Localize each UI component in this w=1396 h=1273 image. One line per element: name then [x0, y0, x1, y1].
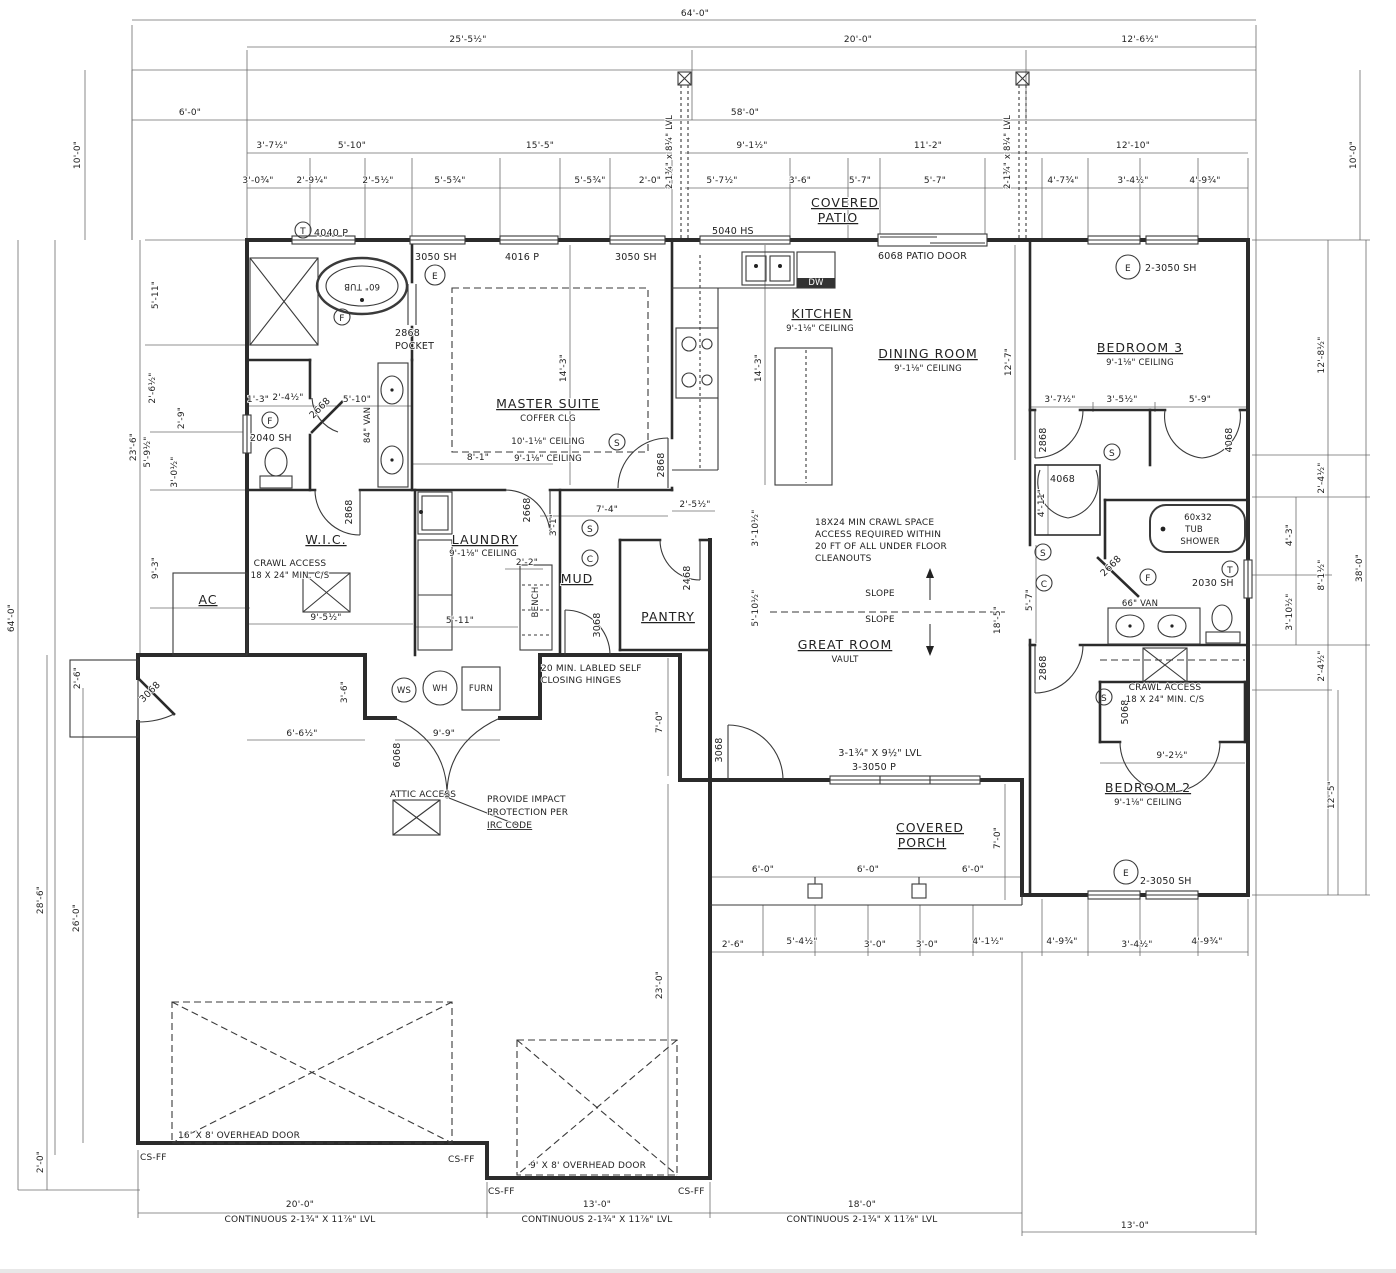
room-pantry: PANTRY: [641, 609, 695, 624]
svg-text:CLOSING HINGES: CLOSING HINGES: [541, 676, 621, 686]
svg-text:4068: 4068: [1050, 474, 1075, 485]
fan-icon: F: [1140, 569, 1156, 585]
svg-text:6'-0": 6'-0": [752, 865, 774, 875]
svg-text:8'-1": 8'-1": [467, 453, 489, 463]
svg-text:2868: 2868: [395, 328, 420, 339]
svg-text:2-3050 SH: 2-3050 SH: [1145, 263, 1197, 274]
svg-text:5'-11": 5'-11": [151, 281, 161, 309]
svg-text:14'-3": 14'-3": [754, 354, 764, 382]
room-ac: AC: [198, 592, 217, 607]
kitchen-sink: [742, 252, 794, 285]
co-detector-icon: C: [1036, 575, 1052, 591]
svg-text:5'-4½": 5'-4½": [786, 937, 817, 947]
smoke-detector-icon: S: [582, 520, 598, 536]
svg-text:3'-10½": 3'-10½": [751, 509, 761, 546]
svg-text:64'-0": 64'-0": [7, 604, 17, 632]
svg-text:ATTIC ACCESS: ATTIC ACCESS: [390, 790, 456, 800]
svg-text:20 MIN. LABLED SELF: 20 MIN. LABLED SELF: [541, 664, 642, 674]
entry-bumpout: [70, 660, 174, 737]
svg-text:WS: WS: [397, 686, 411, 696]
svg-text:9'-1⅛" CEILING: 9'-1⅛" CEILING: [1106, 358, 1174, 368]
floor-plan-drawing: E E E T T F F F S S S S S C C 64'-0" 25'…: [0, 0, 1396, 1269]
toilet-bath2: [1206, 605, 1240, 643]
svg-text:26'-0": 26'-0": [72, 904, 82, 932]
svg-text:4'-9¾": 4'-9¾": [1046, 937, 1077, 947]
svg-text:2'-6": 2'-6": [722, 940, 744, 950]
svg-text:5'-7½": 5'-7½": [706, 176, 737, 186]
room-mud: MUD: [561, 571, 594, 586]
svg-text:4'-11": 4'-11": [1037, 489, 1047, 517]
svg-text:IRC CODE: IRC CODE: [487, 821, 532, 831]
svg-text:PROTECTION PER: PROTECTION PER: [487, 808, 568, 818]
svg-text:9'-1⅛" CEILING: 9'-1⅛" CEILING: [1114, 798, 1182, 808]
svg-text:4040 P: 4040 P: [314, 228, 348, 239]
toilet-master: [260, 448, 292, 488]
svg-text:6068 PATIO DOOR: 6068 PATIO DOOR: [878, 251, 967, 262]
svg-text:84" VAN: 84" VAN: [363, 407, 373, 443]
svg-text:PORCH: PORCH: [898, 835, 947, 850]
svg-text:28'-6": 28'-6": [36, 886, 46, 914]
svg-text:E: E: [432, 272, 438, 282]
svg-text:2'-9": 2'-9": [177, 407, 187, 429]
window-4016: [500, 236, 558, 244]
svg-text:2668: 2668: [308, 396, 333, 421]
window-great: [830, 776, 980, 784]
svg-text:3'-4½": 3'-4½": [1121, 940, 1152, 950]
svg-text:7'-0": 7'-0": [655, 711, 665, 733]
svg-text:E: E: [1123, 869, 1129, 879]
svg-text:9'-1⅛" CEILING: 9'-1⅛" CEILING: [786, 324, 854, 334]
svg-text:5'-7": 5'-7": [1025, 589, 1035, 611]
svg-text:2'-5½": 2'-5½": [679, 500, 710, 510]
svg-text:2-1¾" x 8¼" LVL: 2-1¾" x 8¼" LVL: [1003, 115, 1013, 189]
svg-text:2040 SH: 2040 SH: [250, 433, 292, 444]
svg-text:C: C: [1041, 580, 1047, 590]
svg-text:CS-FF: CS-FF: [488, 1187, 515, 1197]
kitchen-island: [775, 348, 832, 485]
svg-text:3'-0": 3'-0": [916, 940, 938, 950]
svg-text:4016 P: 4016 P: [505, 252, 539, 263]
smoke-detector-icon: S: [1035, 544, 1051, 560]
range: [676, 328, 718, 398]
svg-text:2'-6½": 2'-6½": [148, 372, 158, 403]
svg-text:10'-0": 10'-0": [73, 141, 83, 169]
svg-text:12'-7": 12'-7": [1004, 348, 1014, 376]
svg-text:6'-0": 6'-0": [179, 108, 201, 118]
svg-text:S: S: [587, 525, 593, 535]
svg-text:PROVIDE IMPACT: PROVIDE IMPACT: [487, 795, 566, 805]
svg-text:6068: 6068: [392, 743, 403, 768]
svg-text:5'-7": 5'-7": [849, 176, 871, 186]
porch-post: [808, 884, 822, 898]
svg-text:60" TUB: 60" TUB: [344, 281, 380, 291]
svg-text:SLOPE: SLOPE: [865, 589, 895, 599]
svg-text:3068: 3068: [592, 613, 603, 638]
fan-icon: F: [262, 412, 278, 428]
tempered-icon: T: [1222, 561, 1238, 577]
svg-text:CLEANOUTS: CLEANOUTS: [815, 554, 872, 564]
svg-text:2-1¾" x 8¼" LVL: 2-1¾" x 8¼" LVL: [665, 115, 675, 189]
svg-text:12'-6½": 12'-6½": [1121, 35, 1158, 45]
room-bed2: BEDROOM 2: [1105, 780, 1191, 795]
svg-text:4'-9¾": 4'-9¾": [1191, 937, 1222, 947]
svg-text:3-1¾" X 9½" LVL: 3-1¾" X 9½" LVL: [838, 748, 922, 759]
svg-text:5'-11": 5'-11": [446, 616, 474, 626]
svg-text:CS-FF: CS-FF: [140, 1153, 167, 1163]
svg-text:58'-0": 58'-0": [731, 108, 759, 118]
svg-text:9'-1⅛" CEILING: 9'-1⅛" CEILING: [449, 549, 517, 559]
svg-text:2868: 2868: [1038, 428, 1049, 453]
svg-text:FURN: FURN: [469, 684, 493, 694]
svg-text:F: F: [339, 314, 344, 324]
ac-pad: [173, 573, 247, 655]
svg-text:2668: 2668: [1099, 554, 1124, 579]
svg-text:6'-0": 6'-0": [962, 865, 984, 875]
svg-text:2868: 2868: [656, 453, 667, 478]
svg-text:TUB: TUB: [1184, 525, 1203, 535]
room-kitchen: KITCHEN: [791, 306, 852, 321]
svg-text:CS-FF: CS-FF: [678, 1187, 705, 1197]
svg-text:S: S: [1101, 694, 1107, 704]
svg-text:4'-7¾": 4'-7¾": [1047, 176, 1078, 186]
right-dimension-text: 10'-0" 12'-8½" 2'-4½" 4'-3" 8'-1½" 3'-10…: [1285, 141, 1365, 809]
svg-text:3068: 3068: [714, 738, 725, 763]
window-3050-a: [410, 236, 465, 244]
svg-text:20 FT OF ALL UNDER FLOOR: 20 FT OF ALL UNDER FLOOR: [815, 542, 947, 552]
coffer-ceiling-outline: [452, 288, 648, 452]
svg-text:18X24 MIN CRAWL SPACE: 18X24 MIN CRAWL SPACE: [815, 518, 934, 528]
svg-text:C: C: [587, 555, 593, 565]
svg-text:SHOWER: SHOWER: [1180, 537, 1219, 547]
svg-text:12'-10": 12'-10": [1116, 141, 1150, 151]
svg-text:6'-0": 6'-0": [857, 865, 879, 875]
svg-text:18 X 24" MIN. C/S: 18 X 24" MIN. C/S: [251, 571, 330, 581]
svg-text:T: T: [299, 227, 306, 237]
svg-text:5'-10": 5'-10": [338, 141, 366, 151]
svg-text:3'-7½": 3'-7½": [256, 141, 287, 151]
svg-text:2'-5½": 2'-5½": [362, 176, 393, 186]
svg-text:7'-0": 7'-0": [993, 827, 1003, 849]
master-vanity: [378, 363, 408, 487]
svg-text:60x32: 60x32: [1184, 513, 1212, 523]
svg-text:CONTINUOUS 2-1¾" X 11⅞" LVL: CONTINUOUS 2-1¾" X 11⅞" LVL: [521, 1215, 672, 1225]
exterior-walls: [138, 240, 1248, 1178]
room-dining: DINING ROOM: [878, 346, 978, 361]
svg-text:E: E: [1125, 264, 1131, 274]
svg-text:2'-4½": 2'-4½": [1317, 650, 1327, 681]
svg-text:3050 SH: 3050 SH: [415, 252, 457, 263]
svg-text:3'-0": 3'-0": [864, 940, 886, 950]
svg-text:3'-1": 3'-1": [549, 514, 559, 536]
svg-text:5040 HS: 5040 HS: [712, 226, 754, 237]
svg-text:2'-0": 2'-0": [36, 1151, 46, 1173]
svg-text:38'-0": 38'-0": [1355, 554, 1365, 582]
svg-text:66" VAN: 66" VAN: [1122, 599, 1158, 609]
svg-text:POCKET: POCKET: [395, 341, 434, 352]
svg-text:S: S: [1109, 449, 1115, 459]
svg-text:2030 SH: 2030 SH: [1192, 578, 1234, 589]
svg-text:3'-7½": 3'-7½": [1044, 395, 1075, 405]
svg-text:4'-9¾": 4'-9¾": [1189, 176, 1220, 186]
svg-text:11'-2": 11'-2": [914, 141, 942, 151]
svg-text:14'-3": 14'-3": [559, 354, 569, 382]
egress-icon: E: [1116, 255, 1140, 279]
svg-text:4068: 4068: [1224, 428, 1235, 453]
attic-access-box: [393, 800, 440, 835]
patio-door-6068: [878, 234, 987, 246]
svg-text:PATIO: PATIO: [818, 210, 858, 225]
svg-text:S: S: [614, 439, 620, 449]
svg-text:5'-5¾": 5'-5¾": [434, 176, 465, 186]
porch-post: [912, 884, 926, 898]
room-master-suite: MASTER SUITE: [496, 396, 600, 411]
svg-text:10'-0": 10'-0": [1349, 141, 1359, 169]
svg-text:3'-0½": 3'-0½": [170, 456, 180, 487]
svg-text:2868: 2868: [344, 500, 355, 525]
svg-text:3'-5½": 3'-5½": [1106, 395, 1137, 405]
svg-text:5'-10½": 5'-10½": [751, 589, 761, 626]
svg-text:2'-6": 2'-6": [73, 667, 83, 689]
svg-text:9'-9": 9'-9": [433, 729, 455, 739]
svg-text:18'-0": 18'-0": [848, 1200, 876, 1210]
svg-text:2'-4½": 2'-4½": [1317, 462, 1327, 493]
svg-text:4'-1½": 4'-1½": [972, 937, 1003, 947]
svg-text:12'-8½": 12'-8½": [1317, 336, 1327, 373]
room-laundry: LAUNDRY: [452, 532, 518, 547]
overhead-door-16: [172, 1002, 452, 1143]
svg-text:3050 SH: 3050 SH: [615, 252, 657, 263]
smoke-detector-icon: S: [1104, 444, 1120, 460]
svg-text:S: S: [1040, 549, 1046, 559]
bath2-crawl-access: [1100, 648, 1245, 682]
svg-text:9'-1½": 9'-1½": [736, 141, 767, 151]
svg-text:3'-6": 3'-6": [789, 176, 811, 186]
svg-text:CRAWL ACCESS: CRAWL ACCESS: [254, 559, 327, 569]
svg-text:3068: 3068: [138, 680, 163, 705]
svg-text:CS-FF: CS-FF: [448, 1155, 475, 1165]
room-patio: COVERED: [811, 195, 879, 210]
svg-text:7'-4": 7'-4": [596, 505, 618, 515]
svg-text:16' X 8' OVERHEAD DOOR: 16' X 8' OVERHEAD DOOR: [178, 1131, 300, 1141]
window-2030: [1244, 560, 1252, 598]
svg-text:1'-3": 1'-3": [247, 395, 269, 405]
svg-text:9'-1⅛" CEILING: 9'-1⅛" CEILING: [894, 364, 962, 374]
svg-text:20'-0": 20'-0": [286, 1200, 314, 1210]
svg-text:5'-5¾": 5'-5¾": [574, 176, 605, 186]
egress-icon: E: [1114, 860, 1138, 884]
svg-text:5'-10": 5'-10": [343, 395, 371, 405]
room-wic: W.I.C.: [305, 532, 346, 547]
svg-text:3'-0¾": 3'-0¾": [242, 176, 273, 186]
egress-icon: E: [425, 265, 445, 285]
svg-text:18 X 24" MIN. C/S: 18 X 24" MIN. C/S: [1126, 695, 1205, 705]
master-shower: [250, 258, 318, 345]
svg-text:BENCH: BENCH: [531, 587, 541, 618]
svg-text:3-3050 P: 3-3050 P: [852, 762, 896, 773]
svg-text:2468: 2468: [682, 566, 693, 591]
svg-text:2'-9¼": 2'-9¼": [296, 176, 327, 186]
svg-text:2-3050 SH: 2-3050 SH: [1140, 876, 1192, 887]
svg-text:25'-5½": 25'-5½": [449, 35, 486, 45]
tempered-icon: T: [295, 222, 311, 238]
svg-text:2'-4½": 2'-4½": [272, 393, 303, 403]
smoke-detector-icon: S: [1096, 689, 1112, 705]
window-5040: [700, 236, 790, 244]
room-porch: COVERED: [896, 820, 964, 835]
svg-text:3'-6": 3'-6": [340, 681, 350, 703]
svg-text:9'-5½": 9'-5½": [310, 613, 341, 623]
overhead-door-9: [517, 1040, 677, 1175]
window-3050-b: [610, 236, 665, 244]
svg-text:9'-2½": 9'-2½": [1156, 751, 1187, 761]
svg-text:8'-1½": 8'-1½": [1317, 559, 1327, 590]
svg-text:9'-1⅛" CEILING: 9'-1⅛" CEILING: [514, 454, 582, 464]
svg-text:23'-6": 23'-6": [129, 433, 139, 461]
svg-text:2868: 2868: [1038, 656, 1049, 681]
svg-text:CRAWL ACCESS: CRAWL ACCESS: [1129, 683, 1202, 693]
svg-text:9' X 8' OVERHEAD DOOR: 9' X 8' OVERHEAD DOOR: [530, 1161, 646, 1171]
top-dimension-text: 64'-0" 25'-5½" 20'-0" 12'-6½" 6'-0" 58'-…: [179, 9, 1221, 186]
svg-text:5'-9": 5'-9": [1189, 395, 1211, 405]
svg-text:10'-1⅛" CEILING: 10'-1⅛" CEILING: [511, 437, 584, 447]
room-great: GREAT ROOM: [798, 637, 893, 652]
svg-text:9'-3": 9'-3": [151, 557, 161, 579]
svg-text:COFFER CLG: COFFER CLG: [520, 414, 576, 424]
svg-text:2'-0": 2'-0": [639, 176, 661, 186]
svg-text:VAULT: VAULT: [831, 655, 859, 665]
svg-text:13'-0": 13'-0": [583, 1200, 611, 1210]
svg-text:ACCESS REQUIRED WITHIN: ACCESS REQUIRED WITHIN: [815, 530, 941, 540]
svg-text:SLOPE: SLOPE: [865, 615, 895, 625]
co-detector-icon: C: [582, 550, 598, 566]
left-dimension-text: 10'-0" 64'-0" 23'-6" 5'-11" 2'-6½" 2'-9"…: [7, 141, 187, 1173]
svg-text:13'-0": 13'-0": [1121, 1221, 1149, 1231]
svg-text:18'-5": 18'-5": [993, 606, 1003, 634]
svg-text:WH: WH: [432, 684, 447, 694]
svg-text:12'-5": 12'-5": [1327, 781, 1337, 809]
bottom-dimension-text: 2'-6" 5'-4½" 3'-0" 3'-0" 4'-1½" 4'-9¾" 3…: [224, 937, 1222, 1231]
svg-text:20'-0": 20'-0": [844, 35, 872, 45]
fixture-labels: 60" TUB 84" VAN 66" VAN 60x32 TUB SHOWER…: [344, 278, 1220, 696]
laundry-sink: [418, 492, 452, 534]
smoke-detector-icon: S: [609, 434, 625, 450]
svg-text:CONTINUOUS 2-1¾" X 11⅞" LVL: CONTINUOUS 2-1¾" X 11⅞" LVL: [786, 1215, 937, 1225]
svg-text:F: F: [267, 417, 272, 427]
svg-text:6'-6½": 6'-6½": [286, 729, 317, 739]
svg-text:15'-5": 15'-5": [526, 141, 554, 151]
svg-text:F: F: [1145, 574, 1150, 584]
svg-text:CONTINUOUS 2-1¾" X 11⅞" LVL: CONTINUOUS 2-1¾" X 11⅞" LVL: [224, 1215, 375, 1225]
svg-text:3'-4½": 3'-4½": [1117, 176, 1148, 186]
svg-text:5'-7": 5'-7": [924, 176, 946, 186]
dimension-lines: [18, 20, 1370, 1236]
svg-text:T: T: [1226, 566, 1233, 576]
bath2-vanity: [1108, 608, 1200, 644]
svg-text:DW: DW: [808, 278, 824, 288]
svg-text:5'-9½": 5'-9½": [143, 436, 153, 467]
room-bed3: BEDROOM 3: [1097, 340, 1183, 355]
svg-text:2668: 2668: [522, 498, 533, 523]
dim-overall-width: 64'-0": [681, 9, 709, 19]
svg-text:4'-3": 4'-3": [1285, 524, 1295, 546]
floor-plan-sheet: E E E T T F F F S S S S S C C 64'-0" 25'…: [0, 0, 1396, 1269]
svg-text:2'-2": 2'-2": [516, 558, 538, 568]
svg-text:23'-0": 23'-0": [655, 971, 665, 999]
svg-text:3'-10½": 3'-10½": [1285, 593, 1295, 630]
